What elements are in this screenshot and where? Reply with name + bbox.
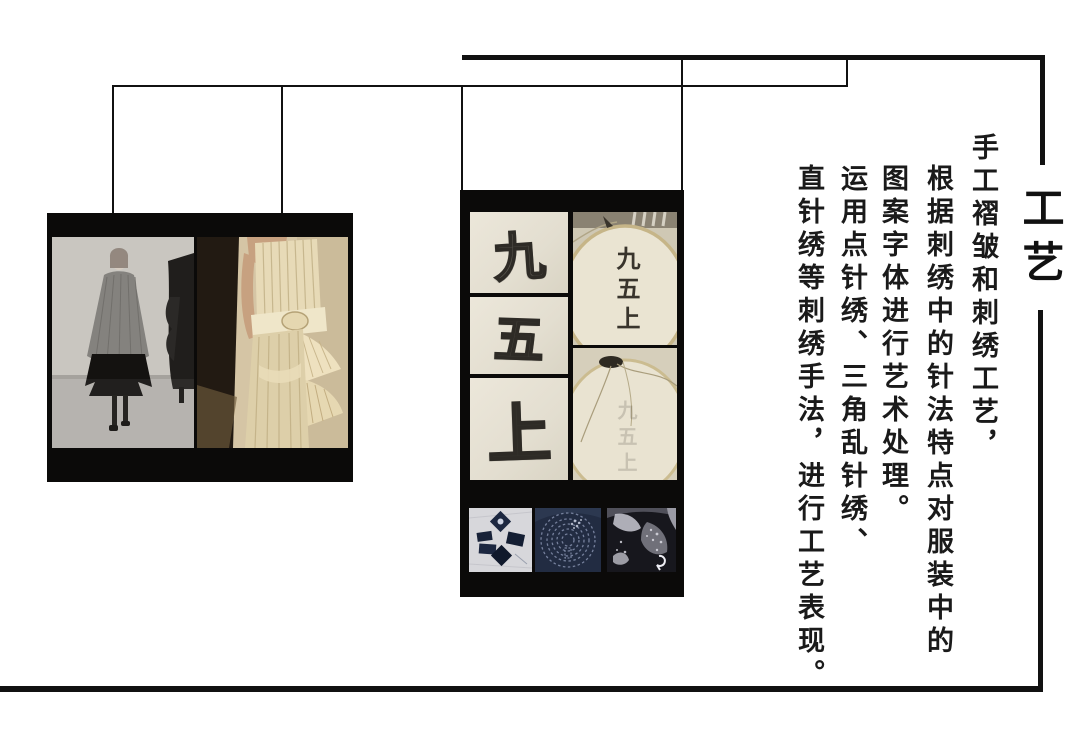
runway-photo-grey-pleated-look: [52, 237, 194, 448]
stitch-sketch-jiu: 九: [470, 212, 568, 293]
connector-drop-line-mid-1: [461, 85, 463, 191]
description-column-5: 直针绣等刺绣手法，进行工艺表现。: [792, 164, 826, 692]
connector-drop-line-mid-2: [681, 57, 683, 191]
swatch-illustration: [535, 508, 601, 572]
swatch-illustration: [469, 508, 532, 572]
runway-photo-illustration: [52, 237, 194, 448]
connector-drop-line-left-2: [281, 85, 283, 213]
connector-top-thick-line: [462, 55, 1045, 60]
stitch-character: 上: [470, 378, 568, 480]
embroidery-board: 九 五 上 九五上: [460, 190, 684, 597]
swatch-indigo-spiral-stitch: [535, 508, 601, 572]
page-title: 工艺: [1016, 186, 1064, 294]
hoop-ink-characters: 九五上: [613, 246, 637, 336]
title-lower-vertical-line: [1038, 310, 1043, 692]
description-column-2: 根据刺绣中的针法特点对服装中的: [921, 164, 955, 659]
stitch-sketch-shang: 上: [470, 378, 568, 480]
bottom-rule: [0, 686, 1043, 692]
stitch-character: 九: [470, 212, 568, 293]
stitch-sketch-wu: 五: [470, 297, 568, 374]
swatch-indigo-diamond-stitch: [469, 508, 532, 572]
hoop-faint-characters: 九五上: [615, 400, 635, 478]
description-column-4: 运用点针绣、三角乱针绣、: [835, 164, 869, 560]
hoop-photo-ink-characters: 九五上: [573, 212, 677, 345]
connector-drop-line-left-1: [112, 85, 114, 213]
description-column-3: 图案字体进行艺术处理。: [876, 164, 910, 527]
presentation-slide: 工艺 手工褶皱和刺绣工艺， 根据刺绣中的针法特点对服装中的 图案字体进行艺术处理…: [0, 0, 1080, 729]
connector-thin-horizontal-line: [112, 85, 848, 87]
connector-right-corner-line: [1040, 55, 1045, 165]
dress-photo-illustration: [197, 237, 348, 448]
stitch-character: 五: [470, 297, 568, 374]
swatch-illustration: [607, 508, 676, 572]
dress-back-photo-cream-pleats: [197, 237, 348, 448]
swatch-dark-speckle-stitch: [607, 508, 676, 572]
hoop-photo-faint-stitching: 九五上: [573, 348, 677, 480]
connector-stub-line: [846, 57, 848, 87]
description-column-1: 手工褶皱和刺绣工艺，: [966, 133, 1000, 463]
inspiration-board: [47, 213, 353, 482]
